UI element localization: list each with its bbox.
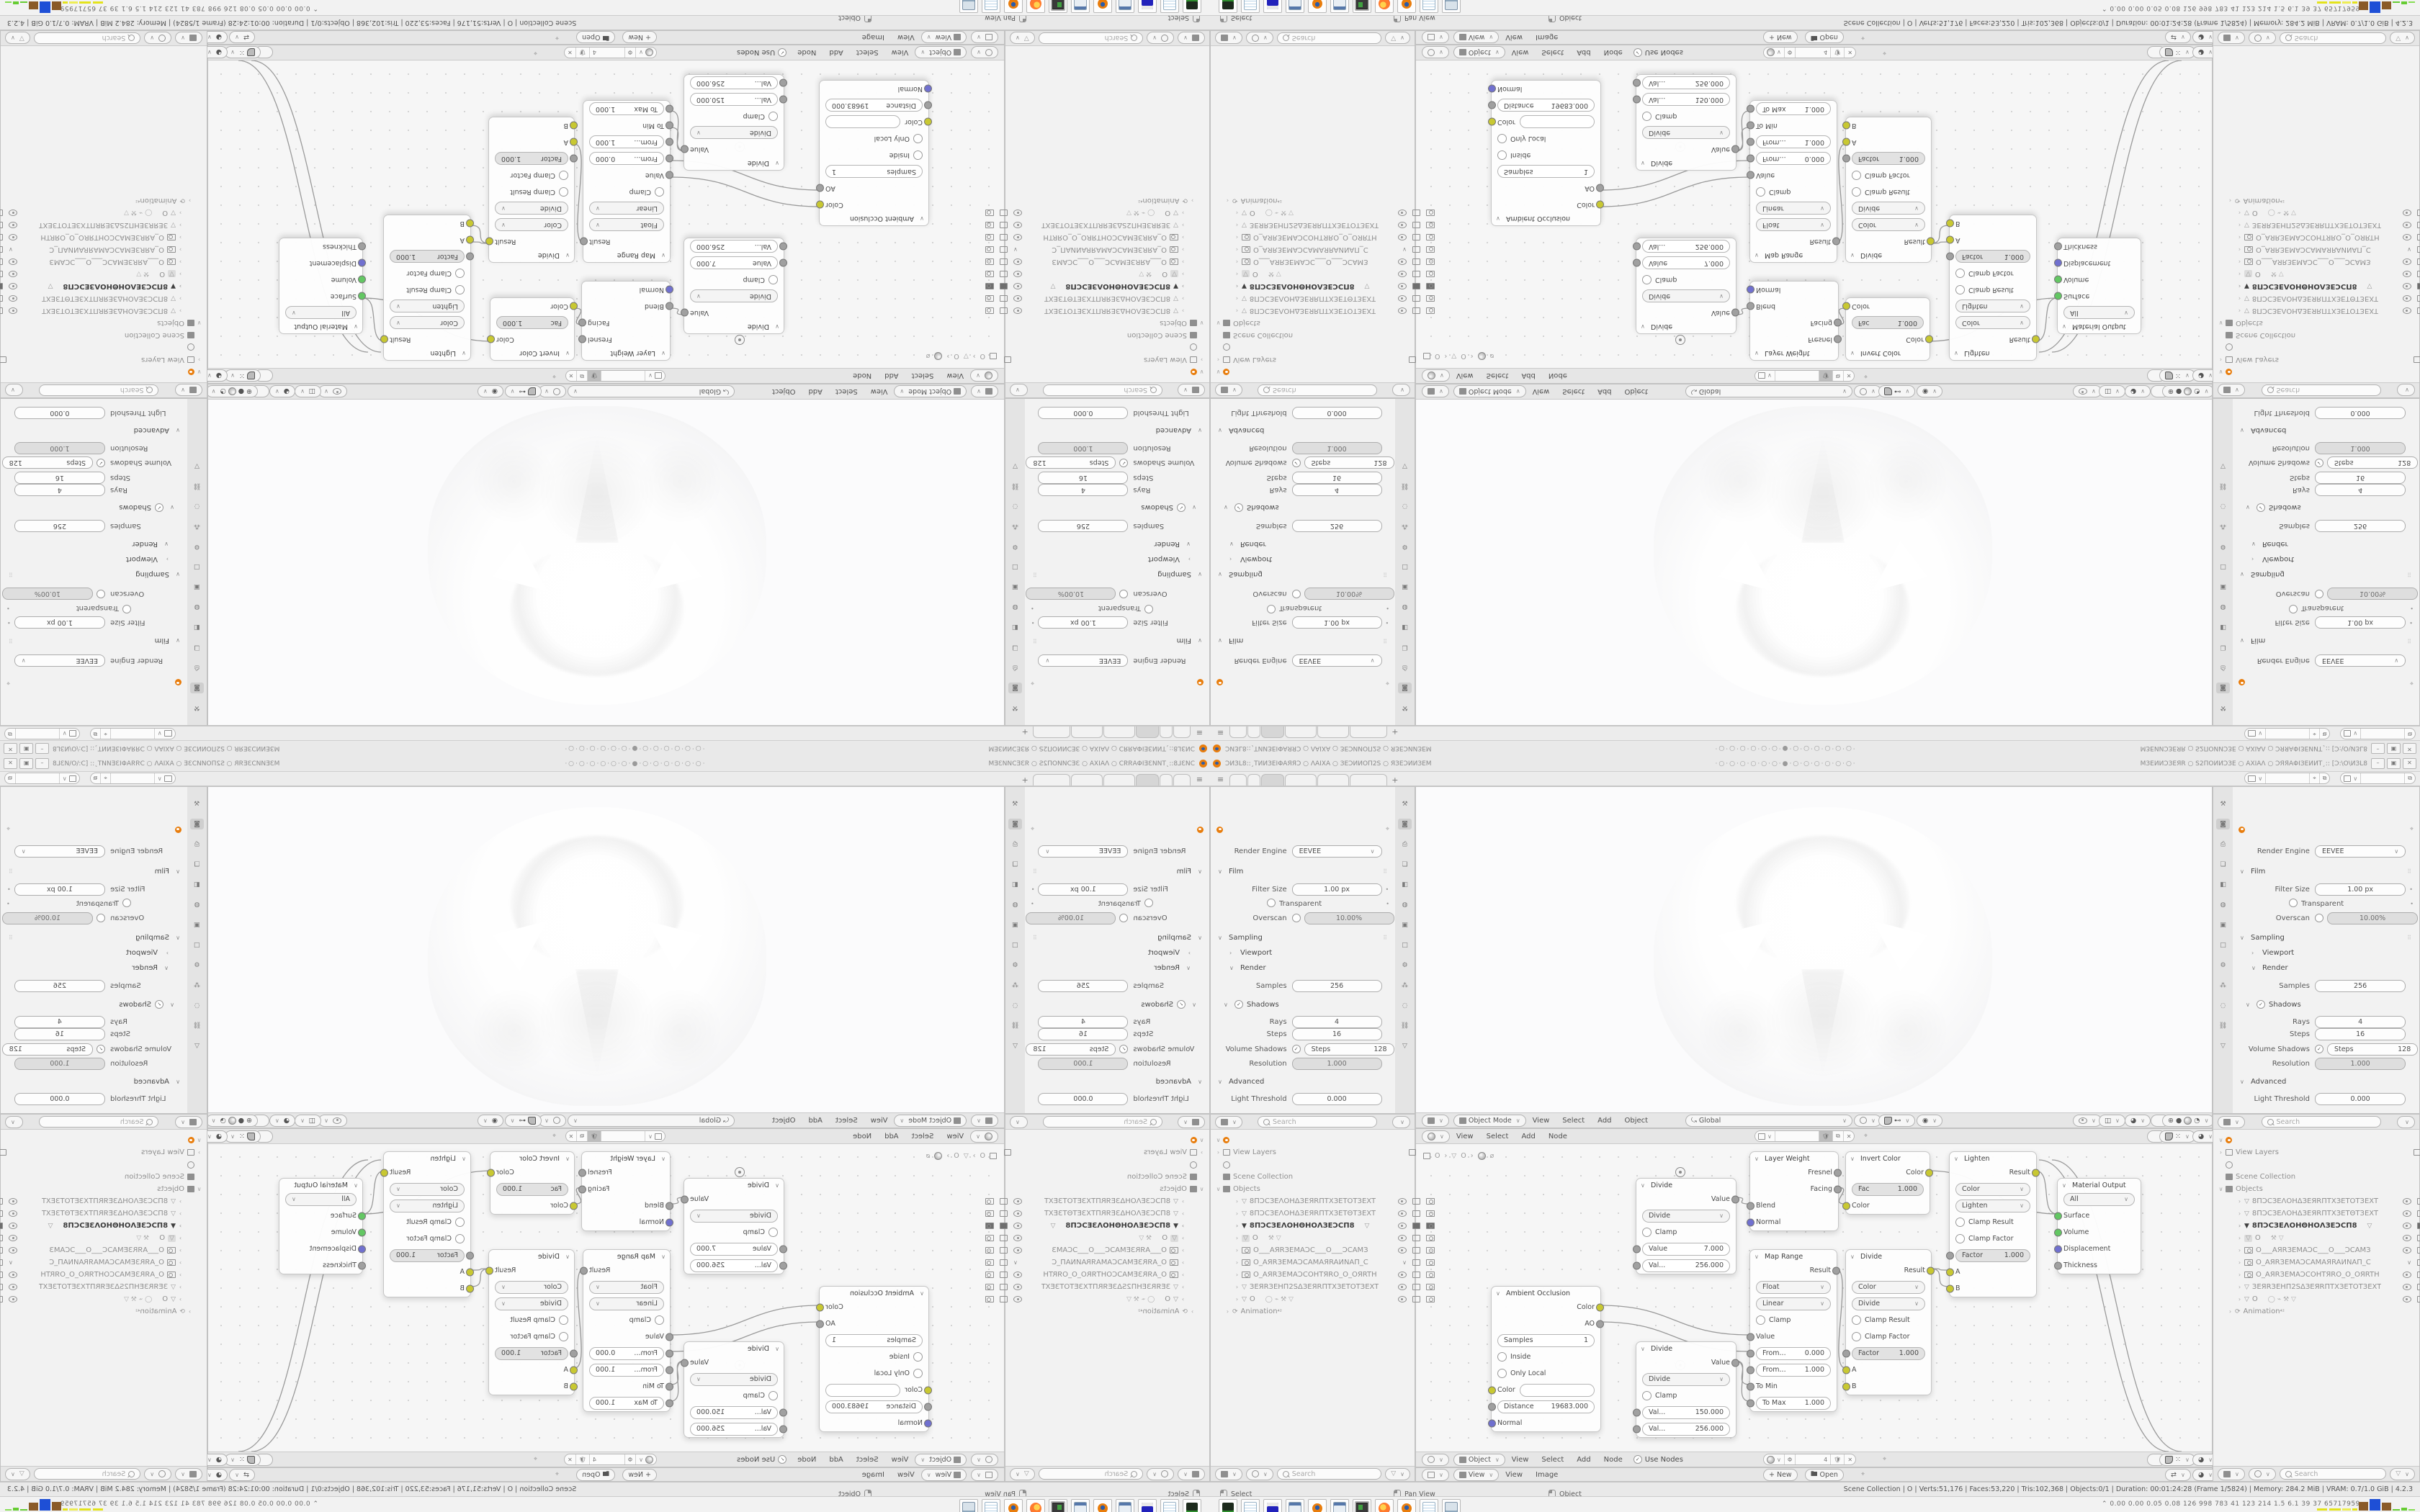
properties-tab-tool-icon[interactable]: ⚒ xyxy=(1398,798,1412,809)
expand-arrow[interactable]: › xyxy=(2236,1235,2243,1241)
node-menu-select[interactable]: Select xyxy=(1487,1133,1509,1140)
node-field-Val...[interactable]: Val...256.000 xyxy=(690,1259,778,1272)
properties-tab-physics-icon[interactable]: ◌ xyxy=(1008,501,1022,512)
viewport-editor-type-button[interactable]: ∨ xyxy=(971,386,998,398)
properties-tab-physics-icon[interactable]: ◌ xyxy=(1008,1000,1022,1011)
expand-arrow[interactable]: › xyxy=(1180,1210,1186,1217)
properties-tab-render-icon[interactable]: ◙ xyxy=(2216,683,2230,693)
taskbar-app-floppy-icon[interactable] xyxy=(1138,0,1157,13)
pin-icon[interactable]: ⌖ xyxy=(552,372,556,379)
node-material-output[interactable]: ∨Material OutputAll∨SurfaceVolumeDisplac… xyxy=(279,238,363,334)
field-checkbox[interactable] xyxy=(2315,914,2323,922)
node-toggle-Clamp Result[interactable]: Clamp Result xyxy=(1955,285,2014,294)
node-field-Distance[interactable]: Distance19683.000 xyxy=(825,99,923,112)
outliner-row[interactable]: ›O___AЯRЗEMAƆC___O___ƆCAMЗ xyxy=(2213,1244,2420,1256)
expand-arrow[interactable]: › xyxy=(2236,1259,2243,1266)
node-invert-color[interactable]: ∨Invert ColorColorFac1.000Color xyxy=(490,1151,575,1215)
taskbar-app-register-icon[interactable] xyxy=(1183,0,1201,13)
properties-tab-collection-icon[interactable]: ▣ xyxy=(2216,582,2230,593)
field-Rays[interactable]: 4 xyxy=(1292,485,1382,497)
field-Overscan[interactable]: 10.00% xyxy=(2,588,93,600)
outliner-row[interactable]: ›▽8ПƆCЗEΛOHΔЗEЯRПTXЗETΘTЗEXT xyxy=(982,292,1209,305)
node-field-Distance[interactable]: Distance19683.000 xyxy=(825,1400,923,1413)
gizmo-dropdown[interactable]: ∨ xyxy=(1854,1115,1881,1127)
shading-modes-cluster[interactable]: ⊕●◔∨ xyxy=(207,1115,258,1127)
node-ambient-occlusion[interactable]: ∨Ambient OcclusionColorAOSamples1InsideO… xyxy=(1491,80,1601,226)
outliner-row[interactable]: ›O_AЯRЗEMAƆCOHTЯRO_O_OЯRTH xyxy=(982,1269,1209,1281)
outliner-search-input[interactable]: Search xyxy=(1258,1116,1377,1128)
expand-arrow[interactable]: ∨ xyxy=(196,320,202,326)
check-Transparent[interactable] xyxy=(2289,603,2298,614)
expand-arrow[interactable]: › xyxy=(177,307,184,314)
outliner-row[interactable]: ›▽ЗEЯRЗEHП2SΔЗEЯRПTXЗETOTЗEXT xyxy=(0,1281,207,1293)
node-field-Fac[interactable]: Fac1.000 xyxy=(496,317,568,330)
node-invert-color[interactable]: ∨Invert ColorColorFac1.000Color xyxy=(1845,297,1930,361)
pin-icon[interactable]: ⌖ xyxy=(1031,826,1034,833)
image-view-dropdown[interactable]: View∨ xyxy=(921,1469,967,1481)
node-field-Factor[interactable]: Factor1.000 xyxy=(1955,1249,2030,1262)
taskbar-app-monitor-icon[interactable] xyxy=(1049,1499,1067,1512)
viewport-menu-view[interactable]: View xyxy=(871,1117,888,1125)
properties-tab-world-icon[interactable]: ◍ xyxy=(1008,602,1022,613)
field-Render Engine[interactable]: EEVEE∨ xyxy=(1039,655,1129,667)
expand-arrow[interactable]: › xyxy=(1180,222,1186,228)
properties-tab-render-icon[interactable]: ◙ xyxy=(190,683,204,693)
outliner-row[interactable]: ›O___AЯRЗEMAƆC___O___ƆCAMЗ xyxy=(1211,256,1438,268)
workspace-tab-2[interactable] xyxy=(1261,774,1284,786)
properties-tab-object-icon[interactable]: □ xyxy=(2216,562,2230,572)
node-menu-select-2[interactable]: Select xyxy=(856,1456,879,1464)
properties-tab-tool-icon[interactable]: ⚒ xyxy=(2216,703,2230,714)
node-snapping-toggle[interactable]: ⁙∨ xyxy=(2159,370,2195,382)
display-mode-dropdown[interactable]: ∨ xyxy=(2218,32,2245,45)
node-dropdown-Float[interactable]: Float∨ xyxy=(1756,219,1831,232)
field-checkbox[interactable] xyxy=(1292,590,1301,598)
node-field-Value[interactable]: Value7.000 xyxy=(1642,257,1730,270)
properties-tab-collection-icon[interactable]: ▣ xyxy=(190,919,204,930)
viewport-menu-select[interactable]: Select xyxy=(835,1117,858,1125)
minimize-button[interactable]: – xyxy=(35,743,49,754)
properties-tab-particles-icon[interactable]: ⁂ xyxy=(1008,521,1022,532)
node-toggle-Clamp Factor[interactable]: Clamp Factor xyxy=(407,269,465,278)
properties-tab-world-icon[interactable]: ◍ xyxy=(1398,899,1412,910)
node-toggle-Clamp[interactable]: Clamp xyxy=(743,1228,778,1237)
properties-tab-viewlayer-icon[interactable]: ❏ xyxy=(1398,642,1412,653)
filter-restriction-dropdown[interactable]: ∨ xyxy=(1246,1468,1273,1480)
node-divide[interactable]: ∨DivideValueDivide∨ClampVal...150.000Val… xyxy=(684,1341,784,1438)
properties-tab-particles-icon[interactable]: ⁂ xyxy=(190,521,204,532)
section-Shadows[interactable]: ∨✓Shadows xyxy=(1224,1000,1279,1009)
pin-icon[interactable]: ⌖ xyxy=(1386,826,1389,833)
field-Rays[interactable]: 4 xyxy=(2315,1016,2406,1028)
viewlayer-selector[interactable]: ∨ ⧉ xyxy=(2340,773,2416,784)
expand-arrow[interactable]: ∨ xyxy=(1215,1186,1222,1192)
node-snapping-toggle[interactable]: ⁙∨ xyxy=(2159,1130,2195,1143)
outliner-row[interactable]: ›O_AЯRЗEMAƆCAMAЯRAИNAП_C∨ xyxy=(0,243,207,256)
viewport-menu-object[interactable]: Object xyxy=(1625,388,1649,396)
node-field-Val...[interactable]: Val...256.000 xyxy=(1642,1423,1730,1436)
filter-funnel-dropdown[interactable]: ▽∨ xyxy=(1010,32,1035,45)
outliner-search-input[interactable]: Search xyxy=(2280,1468,2387,1480)
check-Transparent[interactable] xyxy=(2289,899,2298,909)
use-nodes-checkbox[interactable]: ✓Use Nodes xyxy=(1633,1455,1683,1464)
node-menu-add-2[interactable]: Add xyxy=(829,49,843,57)
taskbar-app-register-icon[interactable] xyxy=(1219,0,1237,13)
node-toggle-Only Local[interactable]: Only Local xyxy=(874,134,923,143)
viewport-menu-add[interactable]: Add xyxy=(808,388,822,396)
node-menu-select[interactable]: Select xyxy=(912,372,934,380)
field-Volume Shadows[interactable]: Steps128 xyxy=(1026,1043,1116,1056)
node-field-Samples[interactable]: Samples1 xyxy=(1497,1334,1595,1347)
properties-tab-particles-icon[interactable]: ⁂ xyxy=(1398,980,1412,991)
outliner-row[interactable]: ›▽8ПƆCЗEΛOHΔЗEЯRПTXЗETΘTЗEXT xyxy=(982,1207,1209,1220)
overlays-toggle[interactable]: ◕∨ xyxy=(2125,386,2151,398)
shader-type-dropdown[interactable]: Object∨ xyxy=(1453,47,1505,59)
expand-arrow[interactable]: › xyxy=(1180,1272,1186,1278)
expand-arrow[interactable]: › xyxy=(2218,1149,2224,1156)
section-Viewport[interactable]: ›Viewport xyxy=(1229,949,1272,957)
taskbar-app-printer-icon[interactable] xyxy=(959,1499,978,1512)
menu-hamburger-icon[interactable]: ≡ xyxy=(1217,775,1224,784)
xray-toggle[interactable]: ◫∨ xyxy=(2099,1115,2125,1127)
filter-funnel-dropdown[interactable]: ▽∨ xyxy=(2390,1468,2415,1480)
properties-tab-tool-icon[interactable]: ⚒ xyxy=(190,798,204,809)
field-Render Engine[interactable]: EEVEE∨ xyxy=(1292,655,1382,667)
viewport-3d[interactable]: ∨ Object Mode∨ View Select Add Object ⤿G… xyxy=(1415,384,2213,726)
expand-arrow[interactable]: ∨ xyxy=(1198,320,1205,326)
properties-tab-render-icon[interactable]: ◙ xyxy=(1398,819,1412,829)
outliner-row[interactable]: ›O_AЯRЗEMAƆCOHTЯRO_O_OЯRTH xyxy=(2213,1269,2420,1281)
reroute-node[interactable] xyxy=(1675,1167,1685,1177)
taskbar-app-blender-icon[interactable] xyxy=(1308,0,1327,13)
field-Resolution[interactable]: 1.000 xyxy=(1039,443,1129,455)
node-menu-node-2[interactable]: Node xyxy=(797,49,816,57)
mode-dropdown[interactable]: Object Mode∨ xyxy=(894,386,967,398)
expand-arrow[interactable]: › xyxy=(187,1308,193,1315)
expand-arrow[interactable]: › xyxy=(1215,356,1222,363)
outliner-row[interactable]: ∨Objects xyxy=(1211,317,1419,329)
field-Samples[interactable]: 256 xyxy=(14,521,105,533)
section-Clamping[interactable]: ›Clamping xyxy=(135,399,180,400)
outliner-search-input[interactable]: Search xyxy=(1277,32,1382,44)
pin-icon[interactable]: ⌖ xyxy=(2410,826,2414,833)
outliner-row[interactable]: ›O___AЯRЗEMAƆC___O___ƆCAMЗ xyxy=(0,256,207,268)
expand-arrow[interactable]: ∨ xyxy=(2218,1186,2224,1192)
viewlayer-selector[interactable]: ∨ ⧉ xyxy=(4,728,80,739)
properties-tab-output-icon[interactable]: ⎙ xyxy=(1398,839,1412,850)
node-menu-add[interactable]: Add xyxy=(1521,1133,1535,1140)
outliner-row[interactable]: ›View Layers xyxy=(2213,354,2420,366)
outliner-search-input[interactable]: Search xyxy=(1258,384,1377,396)
field-Light Threshold[interactable]: 0.000 xyxy=(1039,1093,1129,1105)
field-Render Engine[interactable]: EEVEE∨ xyxy=(1039,845,1129,858)
properties-tab-data-icon[interactable]: ▽ xyxy=(1008,461,1022,472)
filter-funnel-dropdown[interactable]: ▽∨ xyxy=(1385,32,1410,45)
expand-arrow[interactable]: ∨ xyxy=(196,1186,202,1192)
node-field-From...[interactable]: From...0.000 xyxy=(1756,153,1831,166)
section-Render[interactable]: ∨Render xyxy=(132,964,169,972)
expand-arrow[interactable]: › xyxy=(1180,258,1186,265)
outliner-row[interactable]: ›O_AЯRЗEMAƆCAMAЯRAИNAП_C∨ xyxy=(1211,1256,1438,1269)
properties-tab-data-icon[interactable]: ▽ xyxy=(1398,461,1412,472)
properties-tab-output-icon[interactable]: ⎙ xyxy=(2216,839,2230,850)
node-menu-node[interactable]: Node xyxy=(853,372,871,380)
expand-arrow[interactable]: › xyxy=(1234,210,1240,216)
expand-arrow[interactable]: › xyxy=(1198,356,1205,363)
properties-tab-modifier-icon[interactable]: ⚙ xyxy=(190,541,204,552)
expand-arrow[interactable]: › xyxy=(1215,1149,1222,1156)
expand-arrow[interactable]: › xyxy=(2236,222,2243,228)
outliner-row[interactable]: ›▽8ПƆCЗEΛOHΔЗEЯRПTXЗETOTЗEXT xyxy=(982,1195,1209,1207)
expand-arrow[interactable]: › xyxy=(1180,246,1186,253)
field-Volume Shadows[interactable]: Steps128 xyxy=(1304,1043,1394,1056)
field-checkbox[interactable] xyxy=(1292,914,1301,922)
scene-selector[interactable]: ∨ ⌖⧉ xyxy=(90,773,176,784)
workspace-tab-0[interactable] xyxy=(1173,726,1191,738)
shader-type-dropdown[interactable]: Object∨ xyxy=(915,1454,967,1466)
outliner-search-input[interactable]: Search xyxy=(2262,1116,2381,1128)
color-swatch-field[interactable] xyxy=(825,116,900,129)
field-Steps[interactable]: 16 xyxy=(2315,472,2406,485)
workspace-tab-3[interactable] xyxy=(1103,774,1135,786)
workspace-tab-2[interactable] xyxy=(1136,726,1159,738)
node-toggle-Clamp[interactable]: Clamp xyxy=(743,112,778,121)
node-menu-view-2[interactable]: View xyxy=(1512,1456,1529,1464)
node-material-output[interactable]: ∨Material OutputAll∨SurfaceVolumeDisplac… xyxy=(279,1178,363,1274)
outliner-row[interactable]: ›▽8ПƆCЗEΛOHΔЗEЯRПTXЗETOTЗEXT xyxy=(982,305,1209,317)
field-checkbox[interactable] xyxy=(97,914,105,922)
outliner-row[interactable]: ›View Layers xyxy=(1211,354,1419,366)
node-dropdown-Color[interactable]: Color∨ xyxy=(1955,317,2030,330)
node-snapping-toggle-2[interactable]: ⁙∨ xyxy=(2159,47,2195,59)
node-toggle-Only Local[interactable]: Only Local xyxy=(874,1369,923,1378)
outliner-row[interactable]: ∨Objects xyxy=(0,1183,207,1195)
node-dropdown-Linear[interactable]: Linear∨ xyxy=(1756,202,1831,215)
node-field-Samples[interactable]: Samples1 xyxy=(825,1334,923,1347)
node-field-From...[interactable]: From...0.000 xyxy=(589,1347,664,1360)
properties-tab-particles-icon[interactable]: ⁂ xyxy=(1398,521,1412,532)
node-layer-weight[interactable]: ∨Layer WeightFresnelFacingBlendNormal xyxy=(581,281,671,361)
properties-tab-scene-icon[interactable]: ◧ xyxy=(190,879,204,890)
taskbar-app-notepad-icon[interactable] xyxy=(1160,0,1179,13)
display-mode-dropdown[interactable]: ∨ xyxy=(1215,1468,1242,1480)
expand-arrow[interactable]: › xyxy=(1224,1308,1231,1315)
field-Overscan[interactable]: 10.00% xyxy=(1304,912,1394,924)
expand-arrow[interactable]: › xyxy=(2236,1284,2243,1290)
outliner-row[interactable]: ›⟳Animation ⁴² xyxy=(2213,1305,2420,1318)
expand-arrow[interactable]: › xyxy=(1180,283,1186,289)
properties-tab-output-icon[interactable]: ⎙ xyxy=(1398,662,1412,673)
section-Clamping[interactable]: ›Clamping xyxy=(2240,1113,2285,1114)
field-checkbox[interactable] xyxy=(2315,590,2323,598)
workspace-tab-4[interactable] xyxy=(1071,726,1103,738)
section-Advanced[interactable]: ∨Advanced xyxy=(1218,1078,1264,1086)
node-menu-node[interactable]: Node xyxy=(853,1133,871,1140)
use-nodes-checkbox[interactable]: ✓Use Nodes xyxy=(1633,48,1683,57)
node-field-Val...[interactable]: Val...150.000 xyxy=(690,94,778,107)
expand-arrow[interactable]: ∨ xyxy=(1198,369,1205,375)
taskbar-app-floppy-icon[interactable] xyxy=(1138,1499,1157,1512)
image-new-button[interactable]: +New xyxy=(622,1469,657,1481)
node-toggle-Clamp[interactable]: Clamp xyxy=(1642,275,1677,284)
expand-arrow[interactable]: › xyxy=(1180,307,1186,314)
section-Film[interactable]: ∨Film xyxy=(2240,637,2265,645)
node-toggle-Clamp Result[interactable]: Clamp Result xyxy=(1852,187,1910,197)
node-field-Factor[interactable]: Factor1.000 xyxy=(390,251,465,264)
outliner-row[interactable]: ›O___AЯRЗEMAƆC___O___ƆCAMЗ xyxy=(0,1244,207,1256)
outliner-row[interactable]: Scene Collection xyxy=(1211,1171,1419,1183)
node-toggle-Clamp Result[interactable]: Clamp Result xyxy=(510,1315,568,1325)
outliner-row[interactable]: ›O_AЯRЗEMAƆCAMAЯRAИNAП_C∨ xyxy=(982,243,1209,256)
node-dropdown-Color[interactable]: Color∨ xyxy=(390,1183,465,1196)
scene-selector[interactable]: ∨ ⌖⧉ xyxy=(2244,728,2330,739)
properties-tab-output-icon[interactable]: ⎙ xyxy=(2216,662,2230,673)
node-dropdown-Float[interactable]: Float∨ xyxy=(589,219,664,232)
pin-icon[interactable]: ⌖ xyxy=(1386,679,1389,686)
menu-hamburger-icon[interactable]: ≡ xyxy=(1196,728,1203,737)
filter-funnel-dropdown[interactable]: ▽∨ xyxy=(5,32,30,45)
node-field-Distance[interactable]: Distance19683.000 xyxy=(1497,1400,1595,1413)
outliner-row[interactable]: ›▽O◯ ⌁ ⚒ ▽ xyxy=(1211,1293,1438,1305)
node-snapping-toggle-2[interactable]: ⁙∨ xyxy=(225,47,261,59)
field-Volume Shadows[interactable]: Steps128 xyxy=(2,1043,93,1056)
outliner-row[interactable]: ∨Objects xyxy=(0,317,207,329)
check-Transparent[interactable] xyxy=(122,603,131,614)
node-dropdown-Float[interactable]: Float∨ xyxy=(589,1281,664,1294)
node-divide[interactable]: ∨DivideValueDivide∨ClampVal...150.000Val… xyxy=(1636,1341,1736,1438)
field-Volume Shadows[interactable]: Steps128 xyxy=(1304,457,1394,469)
outliner-row[interactable]: ∨ xyxy=(1001,1134,1209,1146)
pin-icon-2[interactable]: ⌖ xyxy=(1883,1456,1886,1463)
expand-arrow[interactable]: ∨ xyxy=(1215,1137,1222,1143)
overlays-toggle[interactable]: ◕∨ xyxy=(269,386,295,398)
properties-tab-object-icon[interactable]: □ xyxy=(1398,562,1412,572)
expand-arrow[interactable]: › xyxy=(1234,307,1240,314)
color-swatch-field[interactable] xyxy=(1520,116,1595,129)
section-Shadows[interactable]: ∨✓Shadows xyxy=(2246,503,2301,512)
taskbar-app-register-icon[interactable] xyxy=(1219,1499,1237,1512)
node-dropdown-Divide[interactable]: Divide∨ xyxy=(690,1210,778,1223)
display-mode-dropdown[interactable]: ∨ xyxy=(1178,32,1205,45)
node-editor-type-button[interactable]: ∨ xyxy=(970,370,998,382)
properties-tab-render-icon[interactable]: ◙ xyxy=(2216,819,2230,829)
outliner-search-input[interactable]: Search xyxy=(40,384,159,396)
node-toggle-Clamp[interactable]: Clamp xyxy=(1756,1315,1791,1325)
workspace-tab-0[interactable] xyxy=(1229,726,1247,738)
field-Resolution[interactable]: 1.000 xyxy=(2315,443,2406,455)
properties-tab-data-icon[interactable]: ▽ xyxy=(190,1040,204,1051)
field-Resolution[interactable]: 1.000 xyxy=(1292,1058,1382,1070)
node-map-range[interactable]: ∨Map RangeResultFloat∨Linear∨ClampValueF… xyxy=(583,1249,671,1412)
properties-tab-scene-icon[interactable]: ◧ xyxy=(1398,622,1412,633)
properties-tab-viewlayer-icon[interactable]: ❏ xyxy=(190,642,204,653)
node-field-Val...[interactable]: Val...256.000 xyxy=(1642,1259,1730,1272)
menu-hamburger-icon[interactable]: ≡ xyxy=(1217,728,1224,737)
field-Steps[interactable]: 16 xyxy=(14,1028,105,1040)
field-checkbox[interactable]: ✓ xyxy=(1119,1045,1128,1053)
section-Film[interactable]: ∨Film xyxy=(2240,868,2265,876)
image-menu-image[interactable]: Image xyxy=(862,34,884,42)
display-mode-dropdown[interactable]: ∨ xyxy=(1215,384,1242,397)
node-dropdown-Divide[interactable]: Divide∨ xyxy=(495,202,568,215)
node-toggle-Clamp[interactable]: Clamp xyxy=(1756,187,1791,197)
outliner-search-input[interactable]: Search xyxy=(34,32,141,44)
properties-tab-scene-icon[interactable]: ◧ xyxy=(190,622,204,633)
viewlayer-selector[interactable]: ∨ ⧉ xyxy=(2340,728,2416,739)
filter-dropdown[interactable]: ∨ xyxy=(1010,384,1028,397)
node-menu-add[interactable]: Add xyxy=(1521,372,1535,380)
outliner-row[interactable]: ∨ xyxy=(2213,1134,2420,1146)
section-Advanced[interactable]: ∨Advanced xyxy=(134,427,180,435)
outliner-row[interactable]: ›▽ЗEЯRЗEHП2SΔЗEЯRПTXЗETOTЗEXT xyxy=(1211,1281,1438,1293)
shader-type-dropdown[interactable]: Object∨ xyxy=(1453,1454,1505,1466)
section-Advanced[interactable]: ∨Advanced xyxy=(1156,1078,1202,1086)
filter-funnel-dropdown[interactable]: ▽∨ xyxy=(1010,1468,1035,1480)
node-field-Val...[interactable]: Val...256.000 xyxy=(690,77,778,90)
check-Transparent[interactable] xyxy=(1144,899,1153,909)
outliner-row[interactable]: ›▼8ПƆCЗEΛOHΘHOΛЗEƆCП8▽ xyxy=(982,280,1209,292)
gizmo-dropdown[interactable]: ∨ xyxy=(539,386,566,398)
node-menu-view[interactable]: View xyxy=(1456,372,1474,380)
filter-dropdown[interactable]: ∨ xyxy=(2397,1116,2415,1128)
taskbar-app-firefox-icon[interactable] xyxy=(1375,1499,1394,1512)
properties-tab-modifier-icon[interactable]: ⚙ xyxy=(1008,960,1022,971)
expand-arrow[interactable]: › xyxy=(1180,1223,1186,1229)
workspace-tab-1[interactable] xyxy=(1160,774,1173,786)
image-menu-image[interactable]: Image xyxy=(862,1471,884,1479)
display-mode-dropdown[interactable]: ∨ xyxy=(1178,1116,1205,1128)
shader-node-editor[interactable]: O› ▽O› ⌀ ∨ View Select Add Node ∨ 🛡⧉✕ ⌖ … xyxy=(1415,45,2213,384)
node-dropdown-Color[interactable]: Color∨ xyxy=(1955,1183,2030,1196)
visibility-dropdown[interactable]: ∨ xyxy=(2073,1115,2102,1127)
node-editor-type-button-2[interactable]: ∨ xyxy=(971,1454,998,1466)
outliner-row[interactable]: ›▽8ПƆCЗEΛOHΔЗEЯRПTXЗETΘTЗEXT xyxy=(2213,292,2420,305)
node-field-Val...[interactable]: Val...256.000 xyxy=(690,240,778,253)
outliner-row[interactable]: Scene Collection xyxy=(0,1171,207,1183)
field-checkbox[interactable]: ✓ xyxy=(1292,459,1301,467)
filter-dropdown[interactable]: ∨ xyxy=(1392,1116,1410,1128)
node-dropdown-Lighten[interactable]: Lighten∨ xyxy=(1955,300,2030,313)
expand-arrow[interactable]: › xyxy=(2236,246,2243,253)
expand-arrow[interactable]: › xyxy=(177,1284,184,1290)
expand-arrow[interactable]: › xyxy=(1234,1210,1240,1217)
properties-tab-constraint-icon[interactable]: ⛓ xyxy=(190,481,204,492)
field-Samples[interactable]: 256 xyxy=(1292,980,1382,992)
taskbar-app-blender-icon[interactable] xyxy=(1093,1499,1112,1512)
expand-arrow[interactable]: ∨ xyxy=(2218,1137,2224,1143)
field-checkbox[interactable]: ✓ xyxy=(2315,459,2323,467)
node-menu-select-2[interactable]: Select xyxy=(856,49,879,57)
field-Steps[interactable]: 16 xyxy=(2315,1028,2406,1040)
expand-arrow[interactable]: › xyxy=(177,1235,184,1241)
pin-icon-2[interactable]: ⌖ xyxy=(534,49,537,56)
outliner-row[interactable]: ›▽ЗEЯRЗEHП2SΔЗEЯRПTXЗETOTЗEXT xyxy=(982,219,1209,231)
workspace-tab-2[interactable] xyxy=(1136,774,1159,786)
section-Sampling[interactable]: ∨Sampling xyxy=(1157,571,1202,579)
pin-icon-2[interactable]: ⌖ xyxy=(1883,49,1886,56)
properties-tab-physics-icon[interactable]: ◌ xyxy=(190,501,204,512)
snapping-toggle[interactable]: ⊷∨ xyxy=(505,1115,542,1127)
color-swatch-field[interactable] xyxy=(825,1384,900,1397)
proportional-editing-toggle[interactable]: ◉∨ xyxy=(1917,386,1942,398)
properties-tab-constraint-icon[interactable]: ⛓ xyxy=(1398,481,1412,492)
viewport-menu-add[interactable]: Add xyxy=(1597,388,1611,396)
node-divide[interactable]: ∨DivideValueDivide∨ClampValue7.000Val...… xyxy=(1636,238,1736,334)
node-dropdown-Divide[interactable]: Divide∨ xyxy=(690,1373,778,1386)
section-Sampling[interactable]: ∨Sampling xyxy=(1157,934,1202,942)
node-toggle-Inside[interactable]: Inside xyxy=(1497,150,1531,160)
expand-arrow[interactable]: › xyxy=(1189,1308,1196,1315)
